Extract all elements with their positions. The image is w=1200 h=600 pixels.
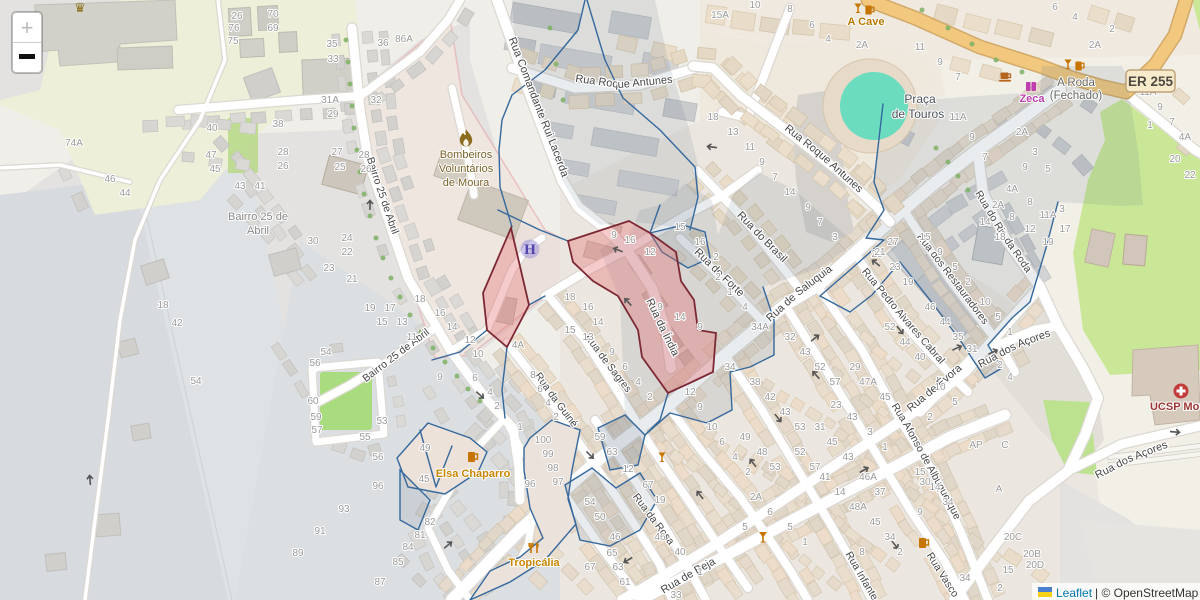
svg-text:84: 84 <box>402 542 414 553</box>
svg-text:9: 9 <box>969 132 975 143</box>
svg-text:Bombeiros: Bombeiros <box>440 149 493 161</box>
svg-text:14: 14 <box>674 312 686 323</box>
svg-text:2: 2 <box>997 583 1003 594</box>
svg-text:18: 18 <box>707 112 719 123</box>
svg-text:de Moura: de Moura <box>443 177 490 189</box>
svg-text:2: 2 <box>965 277 971 288</box>
svg-text:4A: 4A <box>1179 132 1192 143</box>
svg-text:52: 52 <box>884 322 896 333</box>
svg-text:27: 27 <box>331 147 343 158</box>
svg-text:100: 100 <box>535 435 552 446</box>
svg-text:7: 7 <box>817 217 823 228</box>
svg-text:18: 18 <box>564 292 576 303</box>
svg-text:2: 2 <box>997 360 1003 371</box>
svg-text:49: 49 <box>419 443 431 454</box>
svg-text:31: 31 <box>966 344 978 355</box>
svg-text:13: 13 <box>582 332 594 343</box>
svg-text:59: 59 <box>310 412 322 423</box>
svg-text:4: 4 <box>825 34 831 45</box>
svg-text:46: 46 <box>654 532 666 543</box>
svg-text:23: 23 <box>323 263 335 274</box>
svg-text:40: 40 <box>914 352 926 363</box>
svg-text:22: 22 <box>1184 170 1196 181</box>
svg-text:65: 65 <box>606 548 618 559</box>
svg-text:86A: 86A <box>395 34 413 45</box>
svg-text:9: 9 <box>759 157 765 168</box>
svg-text:13: 13 <box>727 127 739 138</box>
svg-text:29: 29 <box>327 109 339 120</box>
svg-text:40: 40 <box>674 547 686 558</box>
svg-text:24: 24 <box>341 233 353 244</box>
svg-text:12: 12 <box>464 335 476 346</box>
svg-text:2A: 2A <box>856 40 869 51</box>
svg-text:17: 17 <box>384 303 396 314</box>
svg-text:57: 57 <box>311 425 323 436</box>
svg-text:6: 6 <box>767 507 773 518</box>
svg-text:56: 56 <box>309 358 321 369</box>
svg-text:7: 7 <box>982 152 988 163</box>
svg-text:52: 52 <box>794 447 806 458</box>
svg-text:1: 1 <box>697 567 703 578</box>
svg-text:♛: ♛ <box>74 0 86 15</box>
svg-text:14: 14 <box>784 187 796 198</box>
svg-text:93: 93 <box>338 504 350 515</box>
svg-text:Zeca: Zeca <box>1019 93 1045 105</box>
svg-text:3: 3 <box>1032 147 1038 158</box>
svg-text:18: 18 <box>414 294 426 305</box>
svg-text:31A: 31A <box>321 95 339 106</box>
svg-text:44: 44 <box>119 188 131 199</box>
svg-text:7: 7 <box>955 72 961 83</box>
svg-text:2A: 2A <box>1016 127 1029 138</box>
svg-text:43: 43 <box>846 412 858 423</box>
svg-text:19: 19 <box>364 303 376 314</box>
svg-text:20C: 20C <box>1004 532 1022 543</box>
svg-text:2: 2 <box>927 412 933 423</box>
svg-text:54: 54 <box>320 347 332 358</box>
svg-text:Tropicália: Tropicália <box>508 557 560 569</box>
svg-text:57: 57 <box>829 377 841 388</box>
svg-text:9: 9 <box>437 372 443 383</box>
svg-text:45: 45 <box>826 437 838 448</box>
svg-text:49: 49 <box>739 432 751 443</box>
svg-text:16: 16 <box>434 308 446 319</box>
svg-text:8: 8 <box>1027 197 1033 208</box>
svg-text:2A: 2A <box>750 492 763 503</box>
svg-text:20B: 20B <box>1023 549 1041 560</box>
svg-text:47A: 47A <box>859 377 877 388</box>
svg-text:76: 76 <box>228 23 240 34</box>
svg-text:33: 33 <box>327 54 339 65</box>
svg-text:5: 5 <box>1045 164 1051 175</box>
svg-text:46: 46 <box>924 302 936 313</box>
svg-text:ER 255: ER 255 <box>1128 74 1174 89</box>
svg-text:9: 9 <box>611 230 617 241</box>
svg-text:11: 11 <box>915 42 926 53</box>
svg-text:1: 1 <box>517 422 523 433</box>
svg-text:30: 30 <box>307 236 319 247</box>
svg-text:41: 41 <box>254 181 266 192</box>
svg-text:48A: 48A <box>849 502 867 513</box>
svg-text:5: 5 <box>952 397 958 408</box>
svg-text:21: 21 <box>346 274 358 285</box>
svg-text:34A: 34A <box>751 322 769 333</box>
svg-text:25: 25 <box>334 162 346 173</box>
svg-text:16: 16 <box>624 235 636 246</box>
svg-text:2: 2 <box>897 547 903 558</box>
svg-text:5: 5 <box>995 312 1001 323</box>
svg-text:4: 4 <box>487 387 493 398</box>
svg-text:21: 21 <box>874 247 886 258</box>
svg-text:40: 40 <box>206 123 218 134</box>
svg-text:7: 7 <box>772 172 778 183</box>
svg-text:13: 13 <box>396 317 408 328</box>
svg-text:19: 19 <box>1042 237 1054 248</box>
svg-text:18: 18 <box>994 232 1006 243</box>
svg-text:26: 26 <box>231 11 243 22</box>
svg-text:8: 8 <box>530 370 536 381</box>
svg-text:75: 75 <box>227 36 239 47</box>
svg-text:A Roda: A Roda <box>1057 77 1095 89</box>
svg-text:45: 45 <box>418 474 430 485</box>
svg-text:1: 1 <box>1147 120 1153 131</box>
svg-text:19: 19 <box>902 277 914 288</box>
svg-text:59: 59 <box>594 432 606 443</box>
svg-text:2: 2 <box>553 412 559 423</box>
svg-text:2A: 2A <box>1089 40 1102 51</box>
svg-text:45: 45 <box>879 392 891 403</box>
svg-text:2: 2 <box>745 467 751 478</box>
svg-text:14: 14 <box>446 322 458 333</box>
svg-text:12: 12 <box>1024 224 1036 235</box>
svg-text:97: 97 <box>552 477 564 488</box>
svg-text:46: 46 <box>104 174 116 185</box>
svg-text:4: 4 <box>1007 372 1013 383</box>
svg-text:14: 14 <box>929 482 941 493</box>
svg-text:2: 2 <box>494 401 500 412</box>
svg-text:81: 81 <box>414 530 426 541</box>
svg-text:26: 26 <box>277 161 289 172</box>
svg-text:2: 2 <box>713 252 719 263</box>
svg-text:34: 34 <box>724 362 736 373</box>
svg-text:9: 9 <box>917 507 923 518</box>
svg-text:9: 9 <box>937 247 943 258</box>
svg-text:15: 15 <box>674 222 686 233</box>
svg-text:42: 42 <box>171 318 183 329</box>
svg-text:36: 36 <box>377 38 389 49</box>
svg-text:45: 45 <box>869 517 881 528</box>
svg-text:96: 96 <box>524 479 536 490</box>
svg-text:10: 10 <box>979 297 991 308</box>
svg-text:10: 10 <box>934 382 946 393</box>
svg-text:9: 9 <box>697 402 703 413</box>
svg-text:2A: 2A <box>992 200 1005 211</box>
svg-text:H: H <box>524 242 536 258</box>
svg-text:19: 19 <box>654 495 666 506</box>
svg-text:15: 15 <box>564 325 576 336</box>
svg-text:85: 85 <box>392 557 404 568</box>
svg-text:| © OpenStreetMap: | © OpenStreetMap <box>1095 586 1199 600</box>
svg-text:8: 8 <box>859 547 865 558</box>
svg-text:74A: 74A <box>65 138 83 149</box>
svg-text:3: 3 <box>867 427 873 438</box>
svg-text:14: 14 <box>592 317 604 328</box>
svg-text:8: 8 <box>787 4 793 15</box>
svg-text:33: 33 <box>670 590 682 600</box>
svg-text:Abril: Abril <box>247 225 269 237</box>
svg-text:11: 11 <box>745 142 756 153</box>
svg-text:9: 9 <box>657 302 663 313</box>
svg-text:8: 8 <box>1009 212 1015 223</box>
svg-text:41: 41 <box>819 472 831 483</box>
svg-text:10: 10 <box>472 349 484 360</box>
svg-text:53: 53 <box>794 422 806 433</box>
svg-text:4: 4 <box>635 377 641 388</box>
svg-text:15A: 15A <box>711 10 729 21</box>
svg-text:16: 16 <box>694 237 706 248</box>
svg-text:67: 67 <box>584 562 596 573</box>
svg-text:63: 63 <box>612 562 624 573</box>
svg-text:4: 4 <box>545 398 551 409</box>
svg-text:43: 43 <box>842 452 854 463</box>
svg-text:9: 9 <box>697 322 703 333</box>
svg-text:20: 20 <box>1169 154 1181 165</box>
svg-text:31: 31 <box>814 422 826 433</box>
svg-text:4: 4 <box>742 302 748 313</box>
svg-text:11A: 11A <box>1039 210 1056 221</box>
svg-text:5: 5 <box>787 522 793 533</box>
svg-text:Elsa Chaparro: Elsa Chaparro <box>436 468 511 480</box>
svg-text:30: 30 <box>919 477 931 488</box>
svg-text:2: 2 <box>715 272 721 283</box>
svg-text:38: 38 <box>272 119 284 130</box>
svg-text:43: 43 <box>779 407 791 418</box>
svg-text:+: + <box>21 15 34 40</box>
svg-text:6: 6 <box>622 362 628 373</box>
svg-text:A: A <box>996 484 1003 495</box>
svg-text:5: 5 <box>952 262 958 273</box>
svg-text:4A: 4A <box>512 340 525 351</box>
svg-text:12: 12 <box>644 247 656 258</box>
svg-text:3: 3 <box>832 232 838 243</box>
svg-text:61: 61 <box>619 577 631 588</box>
svg-text:6: 6 <box>472 373 478 384</box>
svg-text:32: 32 <box>784 332 796 343</box>
svg-text:AP: AP <box>969 440 983 451</box>
svg-text:15: 15 <box>376 317 388 328</box>
svg-text:35: 35 <box>326 39 338 50</box>
svg-text:6: 6 <box>809 20 815 31</box>
svg-text:34: 34 <box>942 497 954 508</box>
svg-text:91: 91 <box>314 526 326 537</box>
svg-text:23: 23 <box>889 262 901 273</box>
svg-text:1: 1 <box>882 442 888 453</box>
svg-text:Voluntários: Voluntários <box>439 163 494 175</box>
svg-text:3: 3 <box>1059 204 1065 215</box>
svg-text:1: 1 <box>727 287 733 298</box>
svg-text:60: 60 <box>307 396 319 407</box>
svg-text:A Cave: A Cave <box>848 16 885 28</box>
svg-text:4A: 4A <box>1006 184 1019 195</box>
svg-text:35: 35 <box>952 332 964 343</box>
svg-text:42: 42 <box>764 392 776 403</box>
svg-text:44: 44 <box>939 317 951 328</box>
svg-text:47: 47 <box>205 150 217 161</box>
svg-text:98: 98 <box>547 463 559 474</box>
svg-text:27: 27 <box>887 237 899 248</box>
svg-text:48: 48 <box>756 447 768 458</box>
svg-text:2: 2 <box>1109 24 1115 35</box>
svg-text:50: 50 <box>594 512 606 523</box>
svg-text:5: 5 <box>742 522 748 533</box>
svg-text:11: 11 <box>407 332 418 343</box>
svg-text:15: 15 <box>919 232 931 243</box>
svg-text:28: 28 <box>358 150 370 161</box>
svg-text:22: 22 <box>341 247 353 258</box>
svg-text:17: 17 <box>1059 224 1071 235</box>
svg-text:45: 45 <box>209 164 221 175</box>
svg-text:Bairro 25 de: Bairro 25 de <box>228 211 288 223</box>
svg-text:12: 12 <box>622 464 634 475</box>
svg-text:70: 70 <box>267 9 279 20</box>
svg-text:10: 10 <box>749 0 761 11</box>
svg-text:6: 6 <box>719 437 725 448</box>
svg-text:43: 43 <box>234 181 246 192</box>
svg-text:32: 32 <box>370 95 382 106</box>
svg-text:46A: 46A <box>859 472 877 483</box>
svg-text:20D: 20D <box>1026 560 1044 571</box>
svg-text:52: 52 <box>814 362 826 373</box>
svg-text:89: 89 <box>292 548 304 559</box>
svg-text:14: 14 <box>979 217 991 228</box>
svg-text:96: 96 <box>372 481 384 492</box>
svg-text:UCSP Mou: UCSP Mou <box>1150 401 1200 413</box>
svg-text:67: 67 <box>642 480 654 491</box>
svg-text:82: 82 <box>424 517 436 528</box>
svg-text:46: 46 <box>609 532 621 543</box>
svg-text:6: 6 <box>537 384 543 395</box>
svg-text:23: 23 <box>830 400 842 411</box>
svg-text:11A: 11A <box>949 112 966 123</box>
svg-text:4: 4 <box>732 452 738 463</box>
svg-text:56: 56 <box>372 452 384 463</box>
svg-text:4: 4 <box>1072 12 1078 23</box>
svg-text:55: 55 <box>359 432 371 443</box>
svg-text:99: 99 <box>542 449 554 460</box>
svg-text:12: 12 <box>684 387 696 398</box>
svg-text:28: 28 <box>277 147 289 158</box>
svg-text:9: 9 <box>1157 102 1163 113</box>
svg-text:29: 29 <box>849 362 861 373</box>
svg-text:43: 43 <box>799 347 811 358</box>
svg-text:63: 63 <box>606 447 618 458</box>
svg-text:9: 9 <box>1022 162 1028 173</box>
svg-text:Leaflet: Leaflet <box>1056 586 1093 600</box>
svg-text:(Fechado): (Fechado) <box>1050 90 1103 102</box>
svg-text:34: 34 <box>884 532 896 543</box>
svg-text:54: 54 <box>584 497 596 508</box>
svg-text:53: 53 <box>376 416 388 427</box>
svg-text:54: 54 <box>190 376 202 387</box>
svg-text:Praça: Praça <box>904 92 936 106</box>
svg-text:1: 1 <box>802 537 808 548</box>
svg-text:C: C <box>1001 440 1008 451</box>
svg-text:7: 7 <box>1169 117 1175 128</box>
svg-text:10: 10 <box>706 422 718 433</box>
svg-text:de Touros: de Touros <box>892 107 944 121</box>
svg-text:18: 18 <box>157 300 169 311</box>
svg-text:2: 2 <box>647 392 653 403</box>
svg-text:9: 9 <box>937 57 943 68</box>
svg-text:53: 53 <box>769 462 781 473</box>
svg-text:69: 69 <box>267 23 279 34</box>
svg-text:34: 34 <box>959 573 971 584</box>
svg-text:26: 26 <box>360 164 372 175</box>
svg-text:1: 1 <box>1007 327 1013 338</box>
svg-text:6: 6 <box>1052 2 1058 13</box>
svg-text:14: 14 <box>834 487 846 498</box>
svg-text:37: 37 <box>874 487 886 498</box>
svg-text:15: 15 <box>1002 565 1014 576</box>
svg-text:44: 44 <box>899 337 911 348</box>
svg-text:87: 87 <box>374 577 386 588</box>
svg-text:38: 38 <box>749 377 761 388</box>
svg-text:9: 9 <box>805 202 811 213</box>
svg-text:16: 16 <box>582 302 594 313</box>
svg-text:9: 9 <box>609 347 615 358</box>
